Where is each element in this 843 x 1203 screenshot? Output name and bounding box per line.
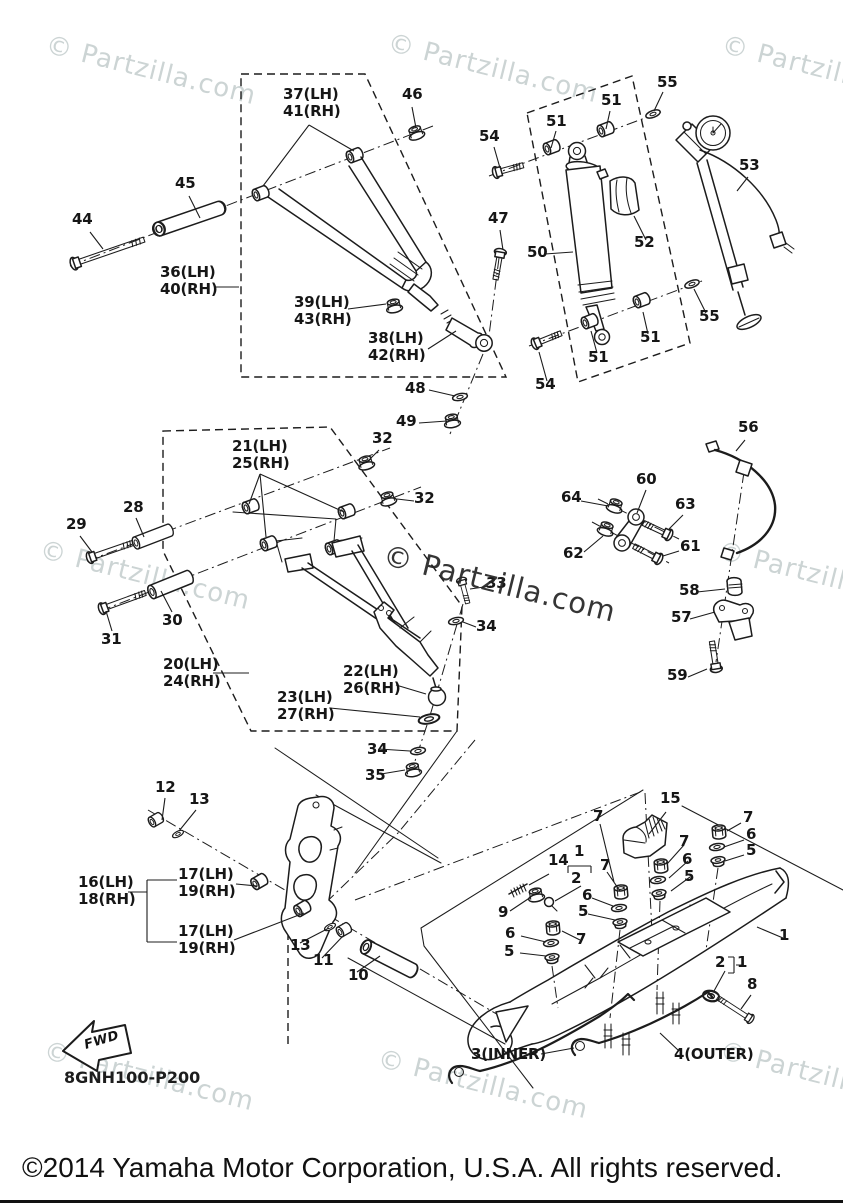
callout-29: 29 <box>66 516 86 533</box>
callout-1: 1 <box>574 843 584 860</box>
callout-15: 15 <box>660 790 680 807</box>
upper-a-arm-assembly <box>69 124 507 429</box>
cable-and-stopper-assembly <box>706 441 775 673</box>
air-pump-assembly <box>676 116 794 332</box>
callout-7: 7 <box>743 809 753 826</box>
callout-3inner: 3(INNER) <box>471 1046 546 1063</box>
callout-54: 54 <box>479 128 499 145</box>
callout-7: 7 <box>593 808 603 825</box>
callout-51: 51 <box>546 113 566 130</box>
callout-32: 32 <box>372 430 392 447</box>
callout-7: 7 <box>679 833 689 850</box>
callout-28: 28 <box>123 499 143 516</box>
callout-49: 49 <box>396 413 416 430</box>
callout-52: 52 <box>634 234 654 251</box>
callout-5: 5 <box>684 868 694 885</box>
callout-50: 50 <box>527 244 547 261</box>
callout-51: 51 <box>588 349 608 366</box>
callout-4outer: 4(OUTER) <box>674 1046 754 1063</box>
callout-61: 61 <box>680 538 700 555</box>
callout-51: 51 <box>601 92 621 109</box>
callout-32: 32 <box>414 490 434 507</box>
callout-22lh-26rh: 22(LH)26(RH) <box>343 663 401 697</box>
callout-21lh-25rh: 21(LH)25(RH) <box>232 438 290 472</box>
callout-5: 5 <box>578 903 588 920</box>
callout-10: 10 <box>348 967 368 984</box>
callout-8: 8 <box>747 976 757 993</box>
callout-46: 46 <box>402 86 422 103</box>
callout-48: 48 <box>405 380 425 397</box>
callout-5: 5 <box>504 943 514 960</box>
callout-7: 7 <box>576 931 586 948</box>
callout-30: 30 <box>162 612 182 629</box>
ski-assembly <box>449 815 788 1083</box>
callout-59: 59 <box>667 667 687 684</box>
callout-37lh-41rh: 37(LH)41(RH) <box>283 86 341 120</box>
copyright-text: ©2014 Yamaha Motor Corporation, U.S.A. A… <box>22 1152 782 1184</box>
callout-17lh-19rh: 17(LH)19(RH) <box>178 866 236 900</box>
callout-20lh-24rh: 20(LH)24(RH) <box>163 656 221 690</box>
callout-34: 34 <box>476 618 496 635</box>
callout-11: 11 <box>313 952 333 969</box>
callout-35: 35 <box>365 767 385 784</box>
callout-13: 13 <box>189 791 209 808</box>
diagram-part-code: 8GNH100-P200 <box>64 1068 200 1087</box>
callout-17lh-19rh: 17(LH)19(RH) <box>178 923 236 957</box>
callout-6: 6 <box>682 851 692 868</box>
callout-14: 14 <box>548 852 568 869</box>
callout-53: 53 <box>739 157 759 174</box>
callout-63: 63 <box>675 496 695 513</box>
callout-45: 45 <box>175 175 195 192</box>
callout-6: 6 <box>505 925 515 942</box>
callout-1: 1 <box>779 927 789 944</box>
callout-38lh-42rh: 38(LH)42(RH) <box>368 330 426 364</box>
callout-13: 13 <box>290 937 310 954</box>
callout-60: 60 <box>636 471 656 488</box>
callout-39lh-43rh: 39(LH)43(RH) <box>294 294 352 328</box>
callout-9: 9 <box>498 904 508 921</box>
callout-44: 44 <box>72 211 92 228</box>
diagram-line-art <box>0 0 843 1200</box>
callout-58: 58 <box>679 582 699 599</box>
shock-absorber-assembly <box>491 108 700 350</box>
callout-55: 55 <box>657 74 677 91</box>
callout-34: 34 <box>367 741 387 758</box>
callout-57: 57 <box>671 609 691 626</box>
callout-56: 56 <box>738 419 758 436</box>
callout-12: 12 <box>155 779 175 796</box>
callout-2: 2 <box>715 954 725 971</box>
callout-16lh-18rh: 16(LH)18(RH) <box>78 874 136 908</box>
parts-diagram-page: 37(LH)41(RH)46454436(LH)40(RH)39(LH)43(R… <box>0 0 843 1203</box>
callout-23lh-27rh: 23(LH)27(RH) <box>277 689 335 723</box>
callout-7: 7 <box>600 857 610 874</box>
callout-54: 54 <box>535 376 555 393</box>
callout-47: 47 <box>488 210 508 227</box>
callout-62: 62 <box>563 545 583 562</box>
callout-2: 2 <box>571 870 581 887</box>
callout-36lh-40rh: 36(LH)40(RH) <box>160 264 218 298</box>
callout-1: 1 <box>737 954 747 971</box>
callout-31: 31 <box>101 631 121 648</box>
callout-5: 5 <box>746 842 756 859</box>
callout-51: 51 <box>640 329 660 346</box>
callout-64: 64 <box>561 489 581 506</box>
callout-55: 55 <box>699 308 719 325</box>
